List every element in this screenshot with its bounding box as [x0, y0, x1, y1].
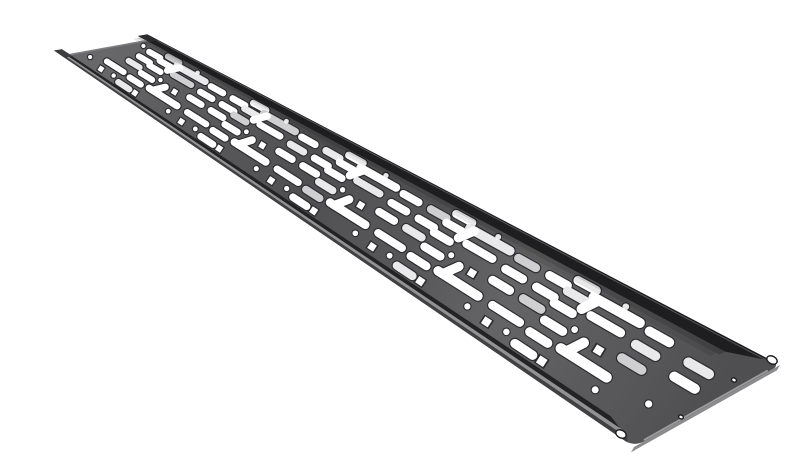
perforation-dot: [448, 252, 454, 258]
perforation-square: [99, 68, 103, 71]
perforation-dot: [158, 78, 162, 82]
perforation-l-slot-stub: [152, 87, 165, 90]
perforation-dot: [193, 127, 198, 132]
perforation-l-slot-stub: [458, 231, 474, 238]
perforation-dot: [645, 400, 652, 407]
perforation-square: [483, 320, 490, 324]
perforation-l-slot-stub: [350, 170, 365, 175]
perforation-dot: [284, 186, 289, 191]
flange-shadow-band: [133, 38, 717, 356]
perforation-square: [311, 209, 317, 213]
perforation-dot: [464, 303, 470, 309]
perforation-l-slot-stub: [334, 199, 349, 205]
perforation-square: [133, 92, 137, 95]
product-photo: Black perforated steel cable management …: [40, 16, 800, 471]
perforation-l-slot-stub: [238, 140, 252, 144]
perforation-dot: [592, 386, 599, 393]
perforation-square: [595, 348, 602, 353]
perforation-dot: [352, 230, 358, 236]
perforation-dot: [387, 253, 393, 259]
perforation-square: [217, 147, 222, 150]
perforation-dot: [166, 109, 171, 114]
perforation-l-slot-stub: [253, 116, 267, 120]
perforation-dot: [503, 329, 509, 335]
perforation-dot: [571, 326, 578, 333]
perforation-dot: [254, 166, 259, 171]
perforation-square: [268, 179, 273, 182]
perforation-square: [417, 279, 423, 283]
perforation-square: [172, 91, 177, 94]
perforation-square: [469, 271, 476, 275]
perforation-dot: [111, 73, 115, 77]
perforation-square: [260, 144, 265, 147]
near-flange-tip: [54, 49, 72, 57]
perforation-dot: [244, 129, 249, 134]
perforation-square: [538, 359, 545, 364]
perforation-l-slot-stub: [167, 68, 180, 71]
perforation-square: [358, 204, 364, 207]
perforation-square: [369, 245, 375, 249]
cable-tray-photo: [40, 16, 800, 471]
perforation-dot: [88, 55, 92, 59]
perforation-dot: [340, 187, 345, 192]
perforation-l-slot-stub: [443, 266, 459, 273]
perforation-square: [179, 120, 184, 123]
